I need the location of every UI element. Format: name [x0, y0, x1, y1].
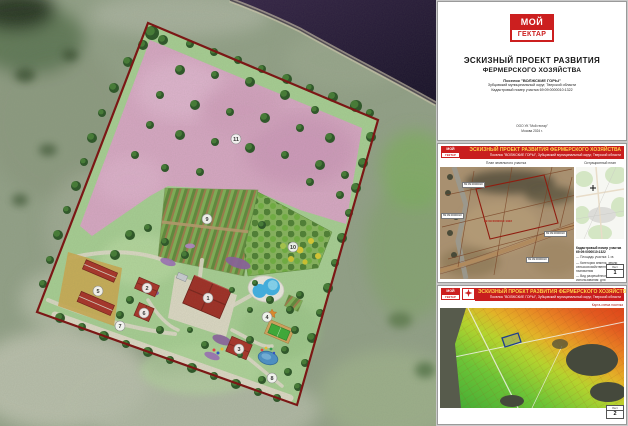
my-hectare-logo: МОЙ ГЕКТАР — [510, 14, 554, 42]
compass-rose-logo — [462, 288, 475, 300]
settlement-heatmap — [440, 308, 624, 408]
aerial-photo: 1234567891011 — [0, 0, 436, 426]
subtitle-cadastre: Кадастровый номер участка 69:09:0000010:… — [438, 88, 626, 93]
document-panel: МОЙ ГЕКТАР ЭСКИЗНЫЙ ПРОЕКТ РАЗВИТИЯ ФЕРМ… — [436, 0, 628, 426]
satellite-overlay — [440, 167, 574, 279]
my-hectare-mini-logo: МОЙ ГЕКТАР — [441, 146, 460, 158]
sheet2-title-band: ЭСКИЗНЫЙ ПРОЕКТ РАЗВИТИЯ ФЕРМЕРСКОГО ХОЗ… — [475, 288, 624, 301]
document-page-title: МОЙ ГЕКТАР ЭСКИЗНЫЙ ПРОЕКТ РАЗВИТИЯ ФЕРМ… — [438, 2, 626, 140]
footer-year: Москва 2024 г. — [438, 129, 626, 134]
photo-grain — [0, 0, 436, 426]
sheet2-header: МОЙ ГЕКТАР ЭСКИЗНЫЙ ПРОЕКТ РАЗВИТИЯ ФЕРМ… — [438, 286, 626, 302]
cadastral-label-2: 69:09:0000010 — [441, 213, 464, 219]
sheet2-footer: Лист 2 — [440, 408, 624, 420]
cadastral-label-3: 69:09:0000010 — [544, 231, 567, 237]
caption-situation-plan: Ситуационный план — [574, 160, 626, 167]
title-line-1: ЭСКИЗНЫЙ ПРОЕКТ РАЗВИТИЯ — [438, 56, 626, 65]
document-page-sheet2: МОЙ ГЕКТАР ЭСКИЗНЫЙ ПРОЕКТ РАЗВИТИЯ ФЕРМ… — [438, 286, 626, 424]
cadastral-label-4: 69:09:0000010 — [526, 257, 549, 263]
title-line-2: ФЕРМЕРСКОГО ХОЗЯЙСТВА — [438, 67, 626, 74]
mini-logo-bottom: ГЕКТАР — [442, 152, 459, 157]
parcel-info-line-1: Кадастровый номер участка 69:09:0000010:… — [576, 246, 624, 254]
site-plan-svg: 1234567891011 — [0, 0, 436, 426]
sheet1-captions: План земельного участка Ситуационный пла… — [438, 160, 626, 167]
document-page-sheet1: МОЙ ГЕКТАР ЭСКИЗНЫЙ ПРОЕКТ РАЗВИТИЯ ФЕРМ… — [438, 144, 626, 282]
sheet-number-2: 2 — [607, 410, 623, 418]
satellite-parcel-image: 69:09:0000010:1322 69:09:000001069:09:00… — [440, 167, 574, 279]
title-subtitle: Поселок "ВОЛЖСКИЕ ГОРЫ" Зубцовский муниц… — [438, 78, 626, 93]
parcel-info-line-2: — Площадь участка: 1 га — [576, 255, 624, 259]
logo-bottom-text: ГЕКТАР — [512, 28, 552, 40]
situation-map — [576, 167, 624, 239]
sheet1-header: МОЙ ГЕКТАР ЭСКИЗНЫЙ ПРОЕКТ РАЗВИТИЯ ФЕРМ… — [438, 144, 626, 160]
sheet1-subtitle: Поселок "ВОЛЖСКИЕ ГОРЫ", Зубцовский муни… — [463, 153, 621, 158]
cadastral-label-1: 69:09:0000010 — [462, 182, 485, 188]
sheet-number-box-2: Лист 2 — [606, 405, 624, 419]
sheet-number-box-1: Лист 1 — [606, 264, 624, 278]
mini-logo-bottom-2: ГЕКТАР — [442, 294, 459, 299]
sheet1-title-band: ЭСКИЗНЫЙ ПРОЕКТ РАЗВИТИЯ ФЕРМЕРСКОГО ХОЗ… — [460, 146, 624, 159]
sheet-number: 1 — [607, 269, 623, 277]
logo-top-text: МОЙ — [512, 16, 552, 28]
sheet2-subtitle: Поселок "ВОЛЖСКИЕ ГОРЫ", Зубцовский муни… — [478, 295, 621, 300]
my-hectare-mini-logo-2: МОЙ ГЕКТАР — [441, 288, 460, 300]
title-footer: ООО УК "Мой гектар" Москва 2024 г. — [438, 124, 626, 133]
parcel-cadastre-label: 69:09:0000010:1322 — [484, 219, 512, 223]
caption-parcel-plan: План земельного участка — [438, 160, 574, 167]
